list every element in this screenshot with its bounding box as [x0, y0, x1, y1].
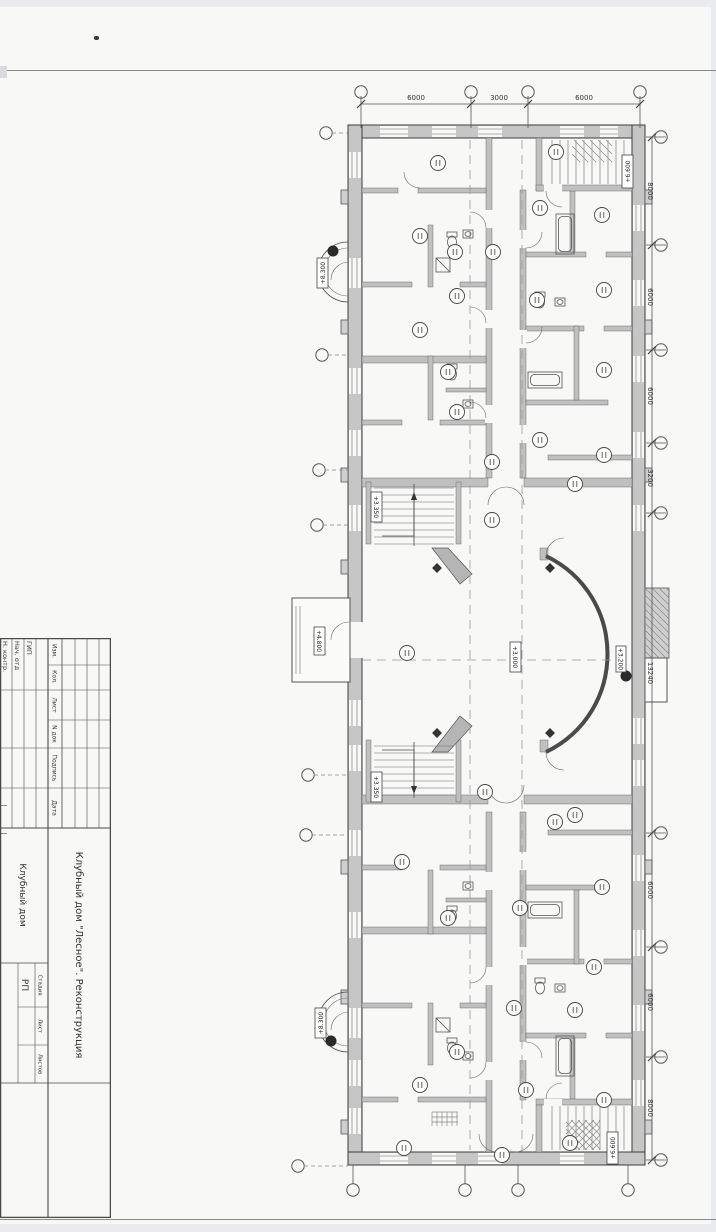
floor-plan: 6000 3000 6000 8000 6000 6000 3200 13240… — [0, 0, 716, 1232]
dim-label: 13240 — [646, 662, 654, 684]
elevation-label: +3.200 — [617, 648, 624, 670]
dim-label: 6000 — [575, 94, 593, 102]
dim-label: 8000 — [646, 1099, 654, 1117]
elevation-label: +6.600 — [625, 160, 632, 182]
axis-dashed-lines — [362, 140, 632, 1150]
right-annexes — [645, 588, 669, 702]
hall-curved-wall — [546, 538, 608, 770]
room-number-bubbles — [395, 145, 612, 1163]
hall-columns — [432, 563, 555, 738]
plumbing-fixtures — [436, 214, 574, 1076]
dim-label: 6000 — [646, 387, 654, 405]
dim-label: 6000 — [646, 881, 654, 899]
stair-treads — [374, 140, 624, 1150]
elevation-label: +6.600 — [610, 1137, 617, 1159]
windows — [349, 126, 644, 1164]
dim-label: 6000 — [407, 94, 425, 102]
dim-label: 3200 — [646, 469, 654, 487]
elevation-label: +8.300 — [318, 1012, 325, 1034]
scanned-drawing-sheet: Изм. Кол. Лист N док Подпись Дата ГИП На… — [0, 0, 716, 1232]
elevation-label: +8.300 — [320, 262, 327, 284]
dim-label: 6000 — [646, 288, 654, 306]
elevation-label: +3.350 — [372, 776, 379, 798]
dim-label: 3000 — [490, 94, 508, 102]
elevation-label: +3.350 — [372, 496, 379, 518]
dimension-lines — [353, 96, 666, 1184]
dim-label: 6000 — [646, 993, 654, 1011]
elevation-label: +4.800 — [315, 630, 322, 652]
dim-label: 8000 — [646, 182, 654, 200]
elevation-label: +3.000 — [511, 646, 518, 668]
building-outer-walls — [348, 125, 645, 1165]
top-dimension-labels: 6000 3000 6000 — [407, 94, 593, 102]
